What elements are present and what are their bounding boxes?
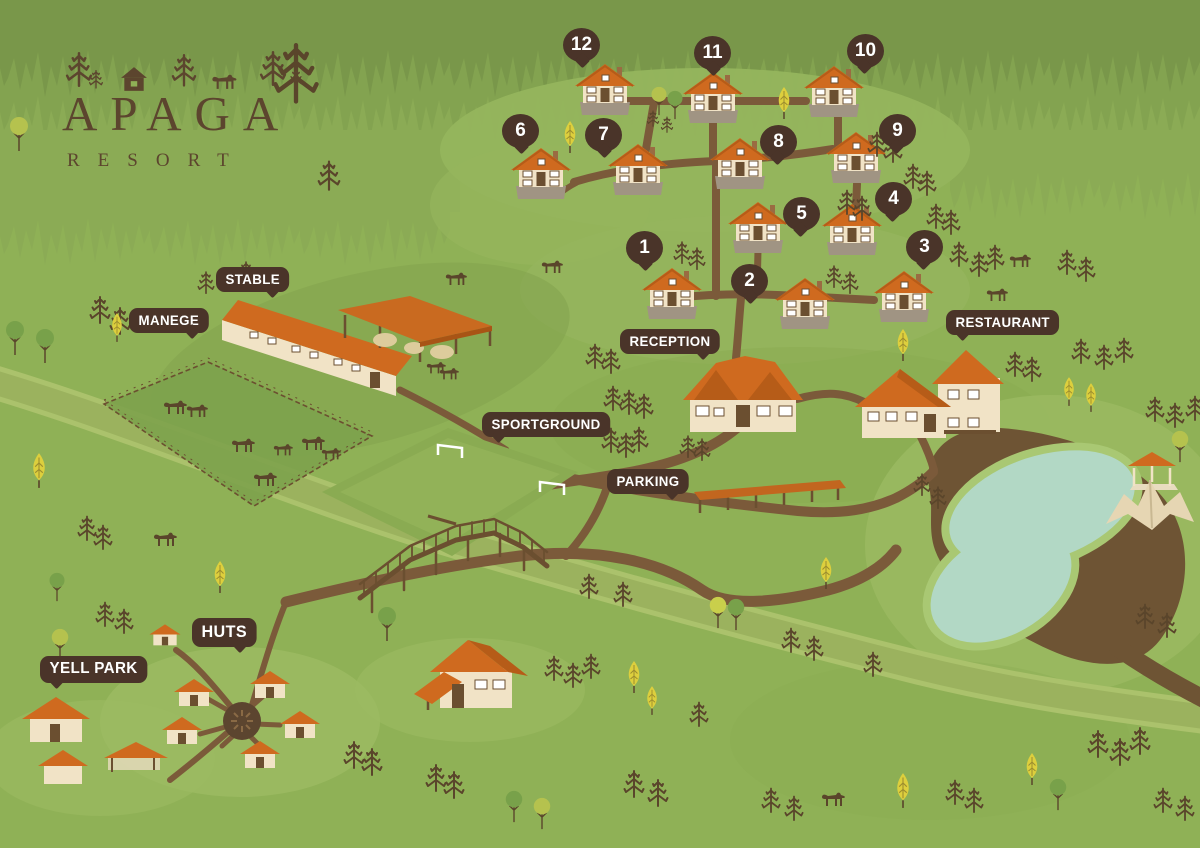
- cottage-8-marker[interactable]: 8: [760, 125, 797, 159]
- cottage-7-marker[interactable]: 7: [585, 118, 622, 152]
- label-parking[interactable]: PARKING: [607, 469, 689, 494]
- label-manege[interactable]: MANEGE: [129, 308, 209, 333]
- resort-map: APAGA RESORT STABLE MANEGE RECEPTION RES…: [0, 0, 1200, 848]
- pine-tree-icon: [290, 70, 303, 87]
- cottage-3-marker[interactable]: 3: [906, 230, 943, 264]
- resort-name: APAGA: [62, 89, 332, 138]
- cottage-5-marker[interactable]: 5: [783, 197, 820, 231]
- label-yell-park[interactable]: YELL PARK: [40, 656, 147, 683]
- resort-logo: APAGA RESORT: [62, 40, 332, 172]
- fire-pit: [223, 702, 261, 740]
- pine-tree-icon: [261, 52, 285, 85]
- label-restaurant[interactable]: RESTAURANT: [946, 310, 1059, 335]
- cottage-6-marker[interactable]: 6: [502, 114, 539, 148]
- cottage-9-marker[interactable]: 9: [879, 114, 916, 148]
- pine-tree-icon: [67, 53, 91, 86]
- cottage-12-marker[interactable]: 12: [563, 28, 600, 62]
- cottage-2-marker[interactable]: 2: [731, 264, 768, 298]
- label-sportground[interactable]: SPORTGROUND: [482, 412, 610, 437]
- cottage-1-marker[interactable]: 1: [626, 231, 663, 265]
- logo-decorations: [62, 40, 322, 92]
- resort-subtitle: RESORT: [62, 150, 332, 172]
- cottage-4-marker[interactable]: 4: [875, 182, 912, 216]
- label-huts[interactable]: HUTS: [192, 618, 256, 647]
- cottage-10-marker[interactable]: 10: [847, 34, 884, 68]
- label-stable[interactable]: STABLE: [216, 267, 290, 292]
- pine-tree-icon: [173, 55, 195, 85]
- cottage-11-marker[interactable]: 11: [694, 36, 731, 70]
- label-reception[interactable]: RECEPTION: [620, 329, 720, 354]
